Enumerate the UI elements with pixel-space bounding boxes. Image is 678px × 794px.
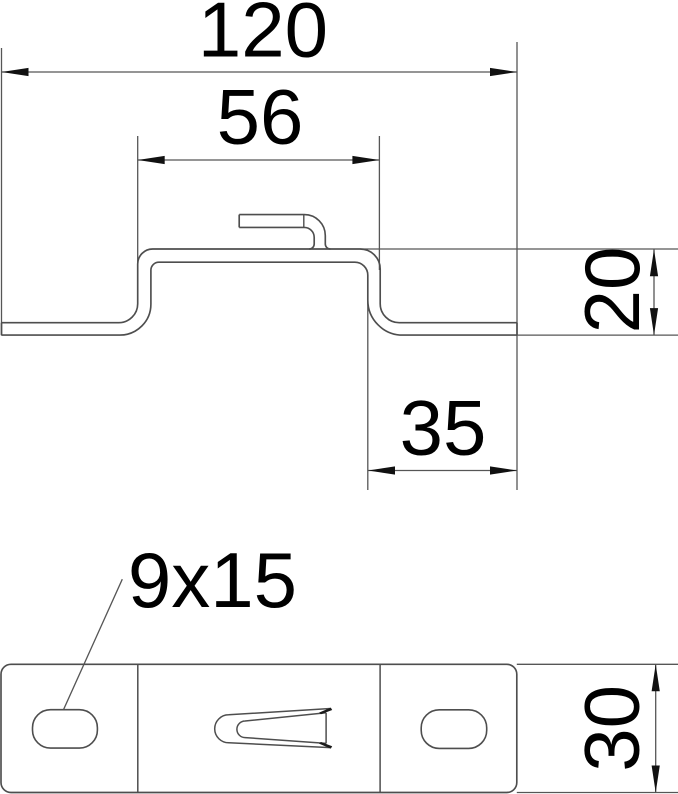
svg-text:56: 56 — [217, 73, 304, 161]
svg-text:20: 20 — [568, 247, 656, 334]
svg-text:30: 30 — [568, 685, 656, 772]
svg-text:9x15: 9x15 — [128, 536, 297, 624]
svg-text:35: 35 — [400, 383, 487, 471]
svg-text:120: 120 — [198, 0, 328, 74]
